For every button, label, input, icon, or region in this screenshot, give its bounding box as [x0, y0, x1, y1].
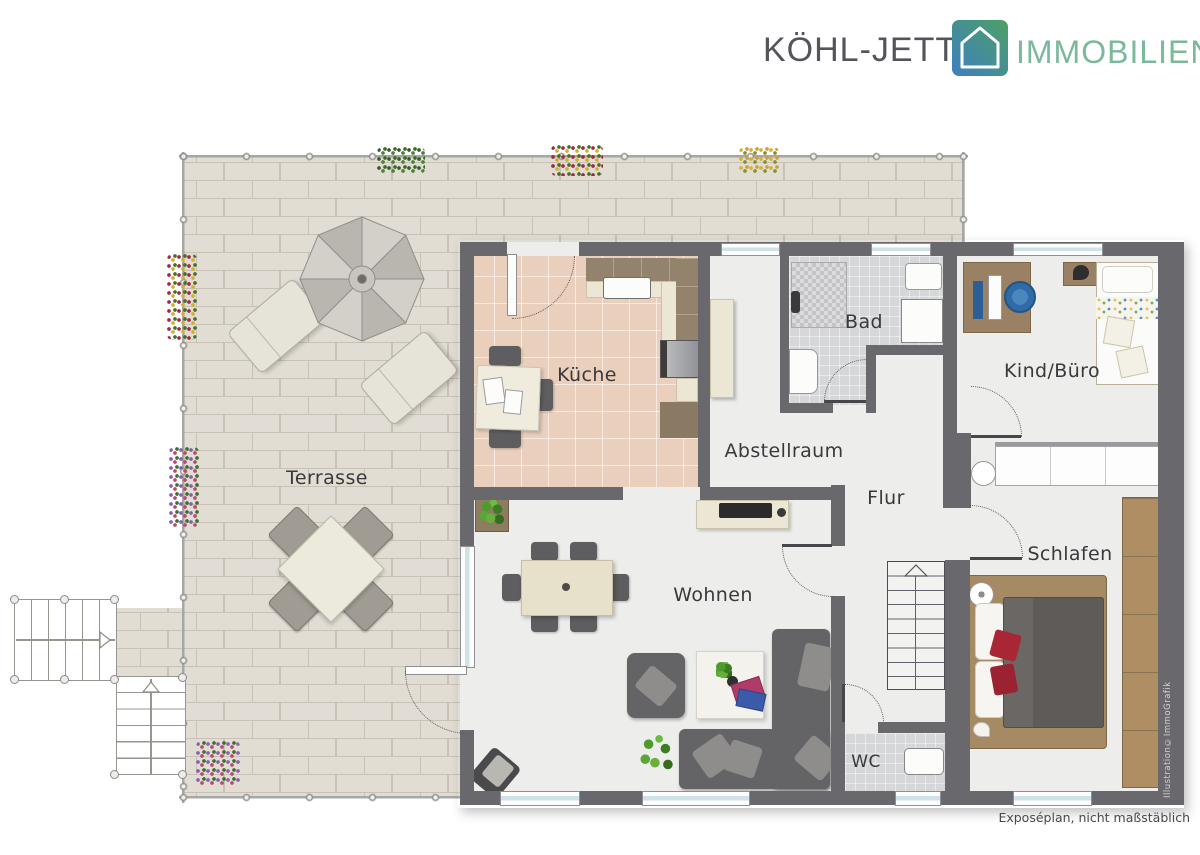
speaker [777, 508, 786, 517]
railing-post [178, 673, 187, 682]
kitchen-chair [489, 428, 521, 448]
flower-box [169, 447, 199, 527]
window-wc [895, 791, 941, 806]
stairs-direction-arrow-right [97, 629, 113, 651]
wall-child-left [943, 256, 957, 433]
wall-bath-bottom [780, 403, 833, 413]
floral-pillow [1115, 345, 1148, 378]
railing-post [60, 595, 69, 604]
dining-chair [531, 542, 558, 561]
floor-lamp-circle [971, 461, 996, 486]
built-in-wardrobe [995, 446, 1160, 486]
railing-post [110, 770, 119, 779]
room-label-terrasse: Terrasse [286, 467, 368, 489]
window-bedroom [1013, 791, 1092, 806]
window-child-room [1013, 243, 1103, 256]
desk-pad [988, 275, 1002, 320]
bathroom-sink [789, 349, 818, 394]
room-label-kueche: Küche [557, 364, 617, 386]
tv [719, 503, 772, 518]
kitchen-cabinet [676, 378, 698, 402]
wall-bedroom-left [945, 560, 970, 791]
stairs-direction-arrow-up [140, 679, 162, 695]
wall-storage-bottom [700, 487, 845, 500]
window-storage [721, 243, 780, 256]
interior-stairs-center-line [915, 575, 916, 690]
kitchen-stove [660, 340, 702, 378]
office-chair [1004, 281, 1036, 313]
railing-post [110, 595, 119, 604]
flower-box [739, 147, 779, 174]
papers-on-table [482, 377, 505, 406]
flower-box [196, 741, 240, 785]
window-living-left [460, 546, 475, 668]
wall-bath-left [780, 256, 789, 405]
room-label-wohnen: Wohnen [673, 584, 753, 606]
window-bathroom [871, 243, 931, 256]
wall-kitchen-right [698, 256, 710, 487]
papers-on-table [503, 389, 523, 415]
window-living-bottom-2 [642, 791, 750, 806]
kitchen-side-cabinets [676, 258, 698, 342]
kitchen-door-opening [507, 242, 579, 256]
terrace-railing-right [959, 152, 968, 247]
railing-post [110, 675, 119, 684]
railing-post [178, 770, 187, 779]
bedroom-wardrobe [1122, 497, 1160, 788]
room-label-abstellraum: Abstellraum [724, 440, 843, 462]
footer-disclaimer: Exposéplan, nicht maßstäblich [890, 810, 1190, 825]
room-label-wc: WC [851, 752, 880, 772]
bedside-decor [973, 722, 990, 737]
room-label-flur: Flur [867, 487, 905, 509]
wall-bath-step-h [866, 345, 946, 355]
parasol-umbrella [297, 214, 427, 344]
kitchen-sink [603, 277, 651, 299]
floral-pillow [1103, 316, 1135, 348]
laptop [973, 281, 983, 319]
floor-plant [636, 731, 678, 775]
illustrator-watermark: Illustration©ImmoGrafik [1163, 688, 1173, 798]
railing-post [10, 595, 19, 604]
room-label-kind-buero: Kind/Büro [1004, 360, 1100, 382]
terrace-railing-bottom [179, 793, 465, 802]
floor-plan-canvas: KÖHL-JETTER IMMOBILIEN [0, 0, 1200, 855]
child-bed-blanket-band [1096, 297, 1159, 319]
wall-kitchen-bottom [467, 487, 623, 500]
room-label-bad: Bad [845, 311, 883, 333]
nightstand-item [1073, 265, 1089, 280]
washing-machine [901, 299, 943, 343]
interior-stairs-up-arrow [901, 562, 931, 578]
child-bed-pillow [1102, 266, 1153, 293]
kitchen-chair [489, 346, 521, 366]
window-living-bottom-1 [500, 791, 580, 806]
toilet-bathroom [905, 263, 942, 290]
shower-fixture [791, 291, 800, 313]
flower-box [551, 145, 603, 176]
dining-chair [502, 574, 521, 601]
kitchen-cabinet-large [660, 402, 702, 438]
wall-hall-block [943, 433, 971, 508]
bed-duvet [1003, 597, 1104, 728]
railing-post [60, 675, 69, 684]
flower-box [167, 254, 197, 340]
storage-cabinet [710, 299, 734, 398]
railing-post [10, 675, 19, 684]
toilet-wc [904, 748, 944, 775]
room-label-schlafen: Schlafen [1027, 543, 1112, 565]
flower-box [377, 147, 425, 174]
shelf-plant [478, 498, 506, 526]
wall-living-hall-upper [831, 485, 845, 546]
wall-wc-top [878, 722, 945, 733]
dining-chair [570, 542, 597, 561]
dining-table-centerpiece [562, 583, 570, 591]
red-cushion [990, 663, 1019, 696]
wall-bath-step-v [866, 347, 876, 413]
